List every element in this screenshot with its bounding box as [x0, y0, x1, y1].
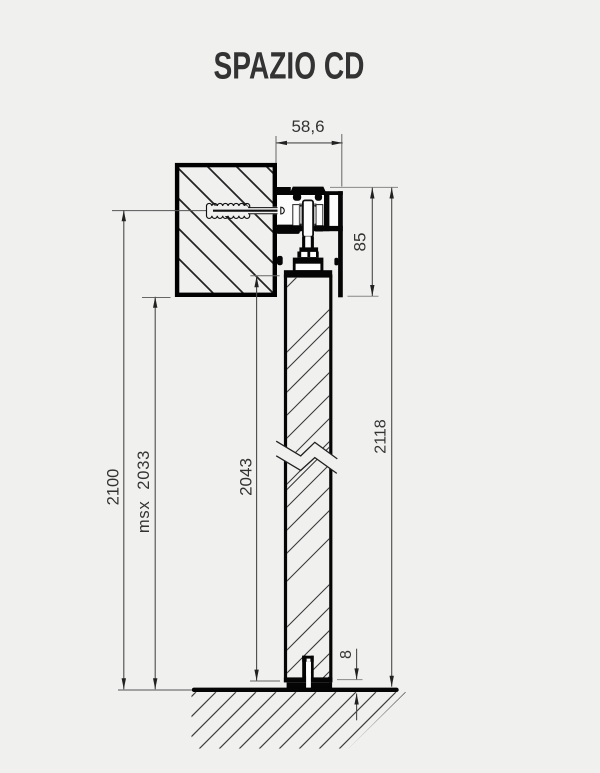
svg-text:SPAZIO CD: SPAZIO CD	[214, 46, 365, 88]
svg-text:58,6: 58,6	[291, 117, 324, 136]
svg-text:2100: 2100	[104, 469, 122, 506]
svg-text:msx 2033: msx 2033	[135, 450, 153, 533]
svg-text:2043: 2043	[236, 458, 255, 496]
svg-text:85: 85	[351, 233, 370, 252]
svg-text:8: 8	[338, 650, 355, 659]
svg-text:2118: 2118	[373, 419, 390, 454]
